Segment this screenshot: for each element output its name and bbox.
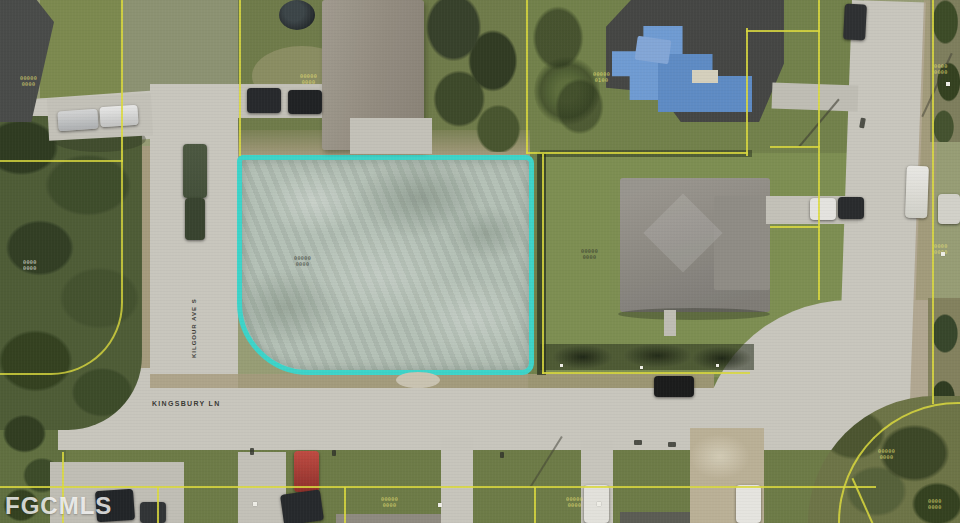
aerial-photo: KINGSBURY LN KILGOUR AVE S 00000 0000000… — [0, 0, 960, 523]
photo-grain-overlay — [0, 0, 960, 523]
mls-watermark: FGCMLS — [5, 492, 112, 520]
